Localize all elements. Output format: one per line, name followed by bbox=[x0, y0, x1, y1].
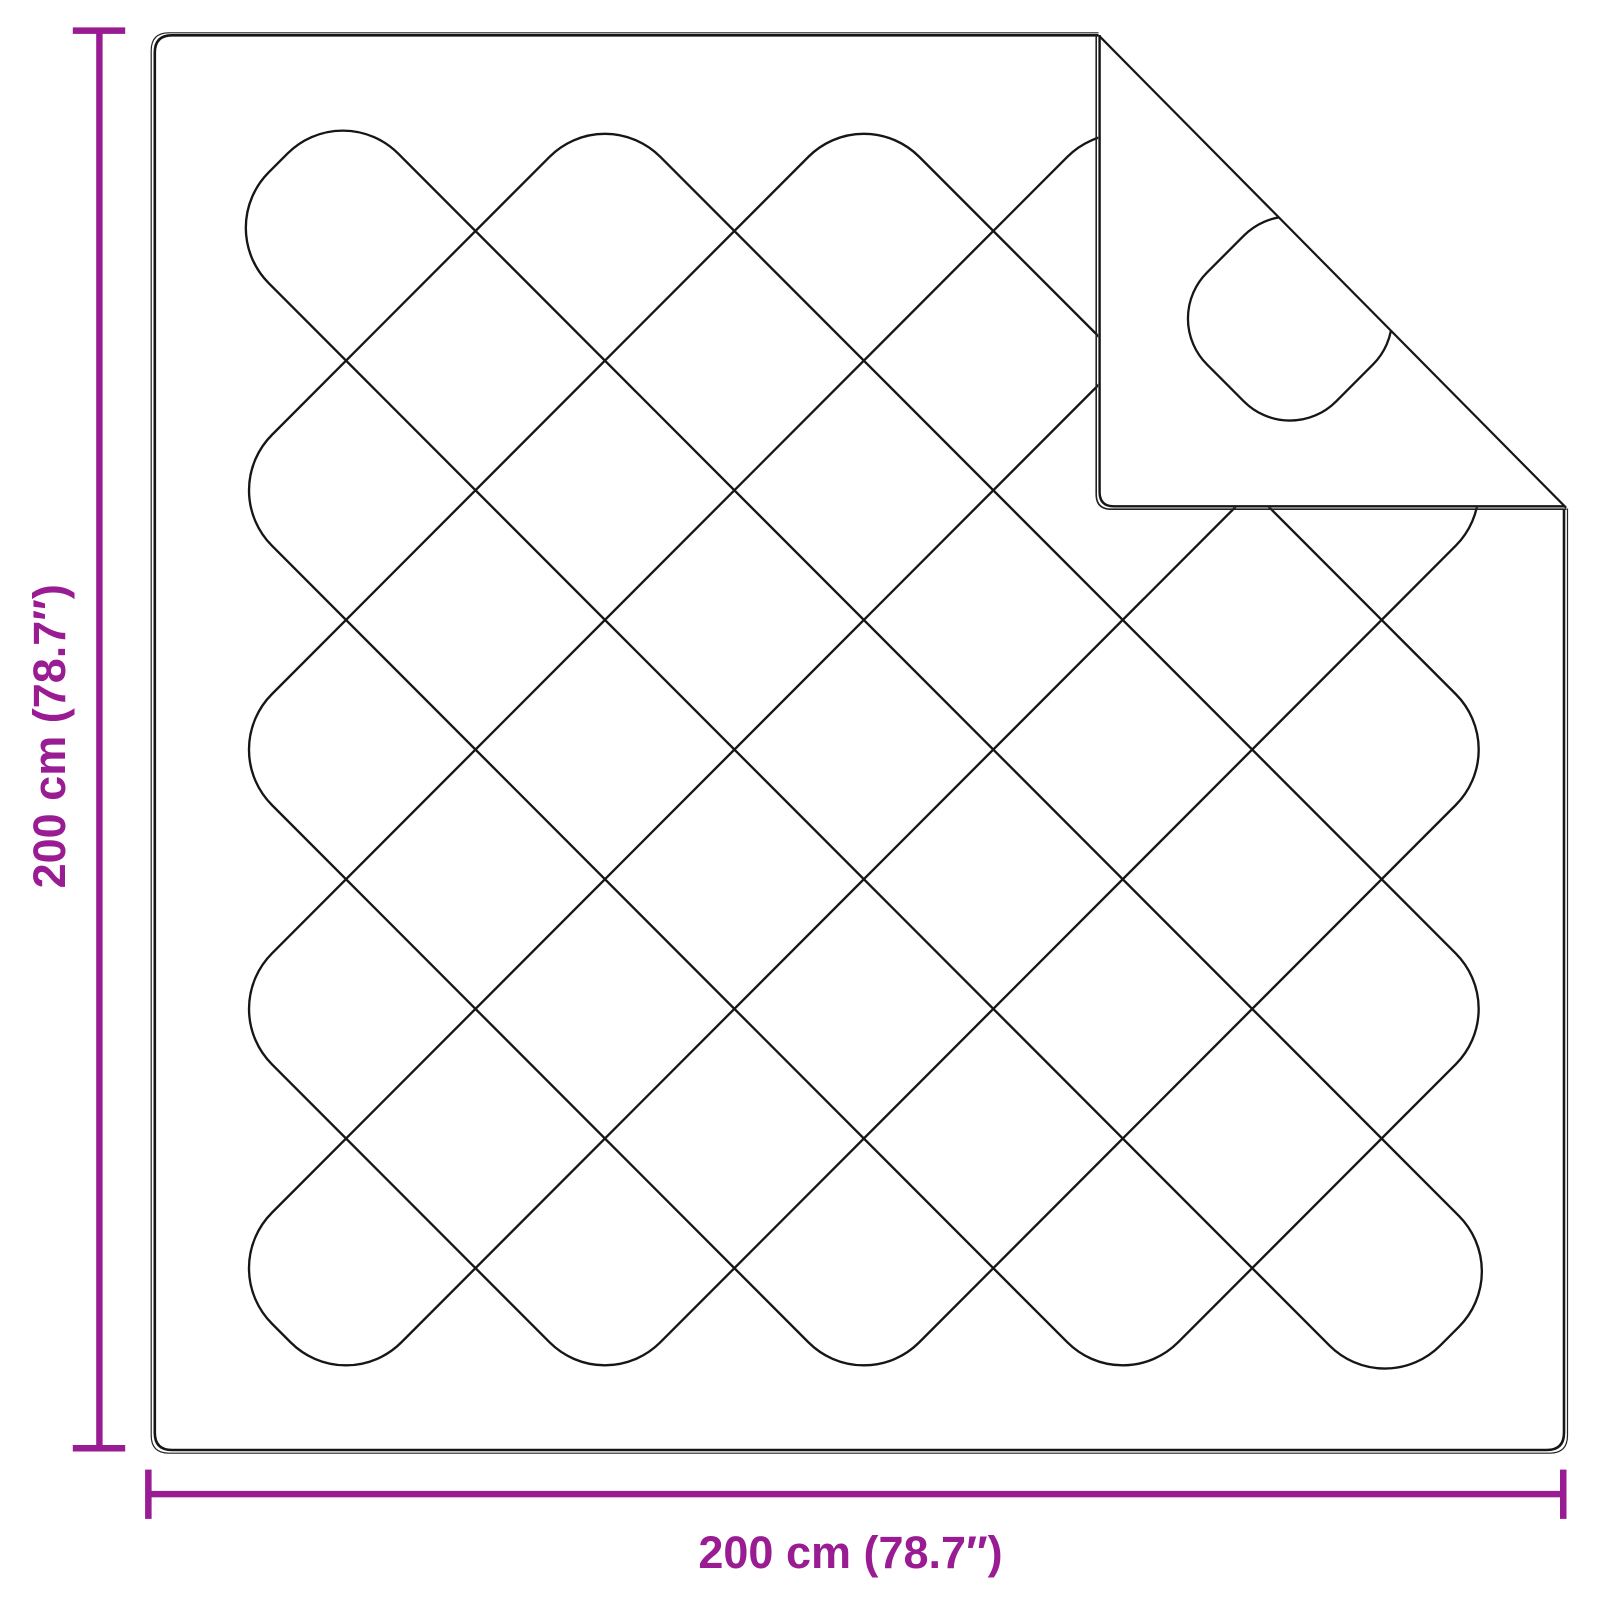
svg-text:200 cm (78.7″): 200 cm (78.7″) bbox=[698, 1527, 1002, 1578]
svg-text:200 cm (78.7″): 200 cm (78.7″) bbox=[24, 584, 75, 888]
